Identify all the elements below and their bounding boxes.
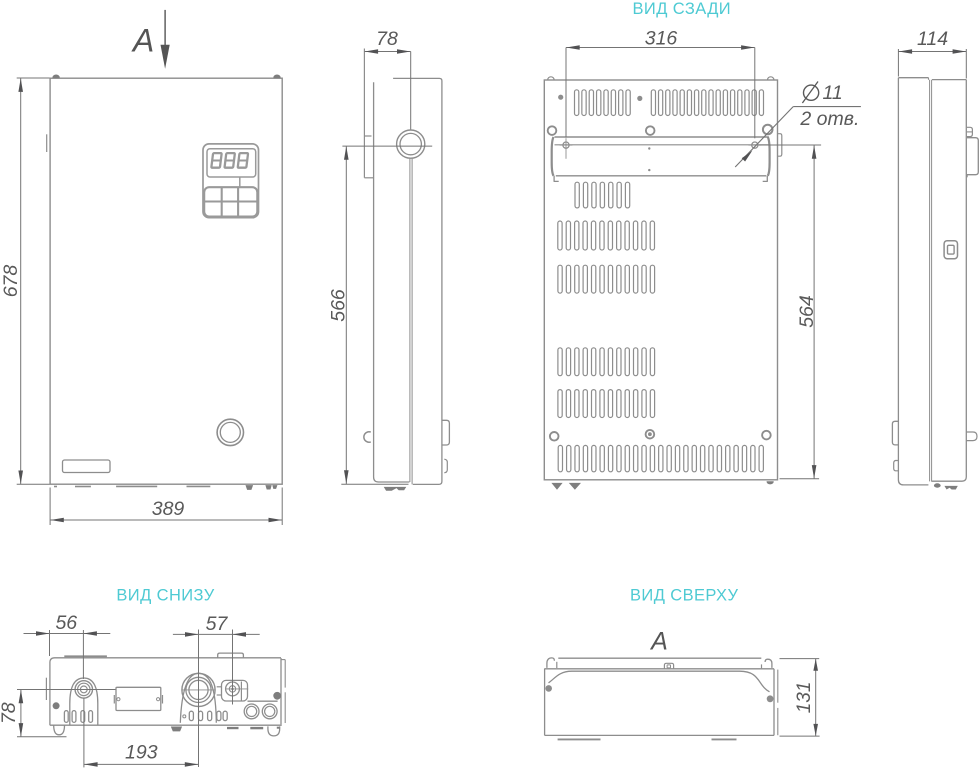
- svg-text:389: 389: [152, 498, 185, 520]
- svg-text:316: 316: [645, 27, 678, 49]
- svg-text:ВИД СВЕРХУ: ВИД СВЕРХУ: [630, 587, 738, 605]
- svg-text:A: A: [649, 628, 668, 656]
- svg-text:78: 78: [0, 702, 20, 724]
- svg-text:2 отв.: 2 отв.: [799, 108, 859, 130]
- svg-text:566: 566: [328, 289, 350, 322]
- svg-text:564: 564: [796, 295, 818, 328]
- svg-text:ВИД СЗАДИ: ВИД СЗАДИ: [633, 0, 732, 18]
- svg-text:11: 11: [823, 82, 843, 104]
- svg-text:114: 114: [917, 28, 948, 50]
- svg-text:193: 193: [125, 741, 158, 763]
- svg-text:56: 56: [55, 612, 77, 634]
- svg-text:ВИД СНИЗУ: ВИД СНИЗУ: [116, 587, 214, 605]
- svg-text:678: 678: [0, 265, 22, 298]
- svg-text:78: 78: [376, 28, 398, 50]
- svg-text:131: 131: [794, 682, 815, 714]
- svg-text:A: A: [131, 23, 154, 59]
- svg-text:57: 57: [206, 613, 229, 635]
